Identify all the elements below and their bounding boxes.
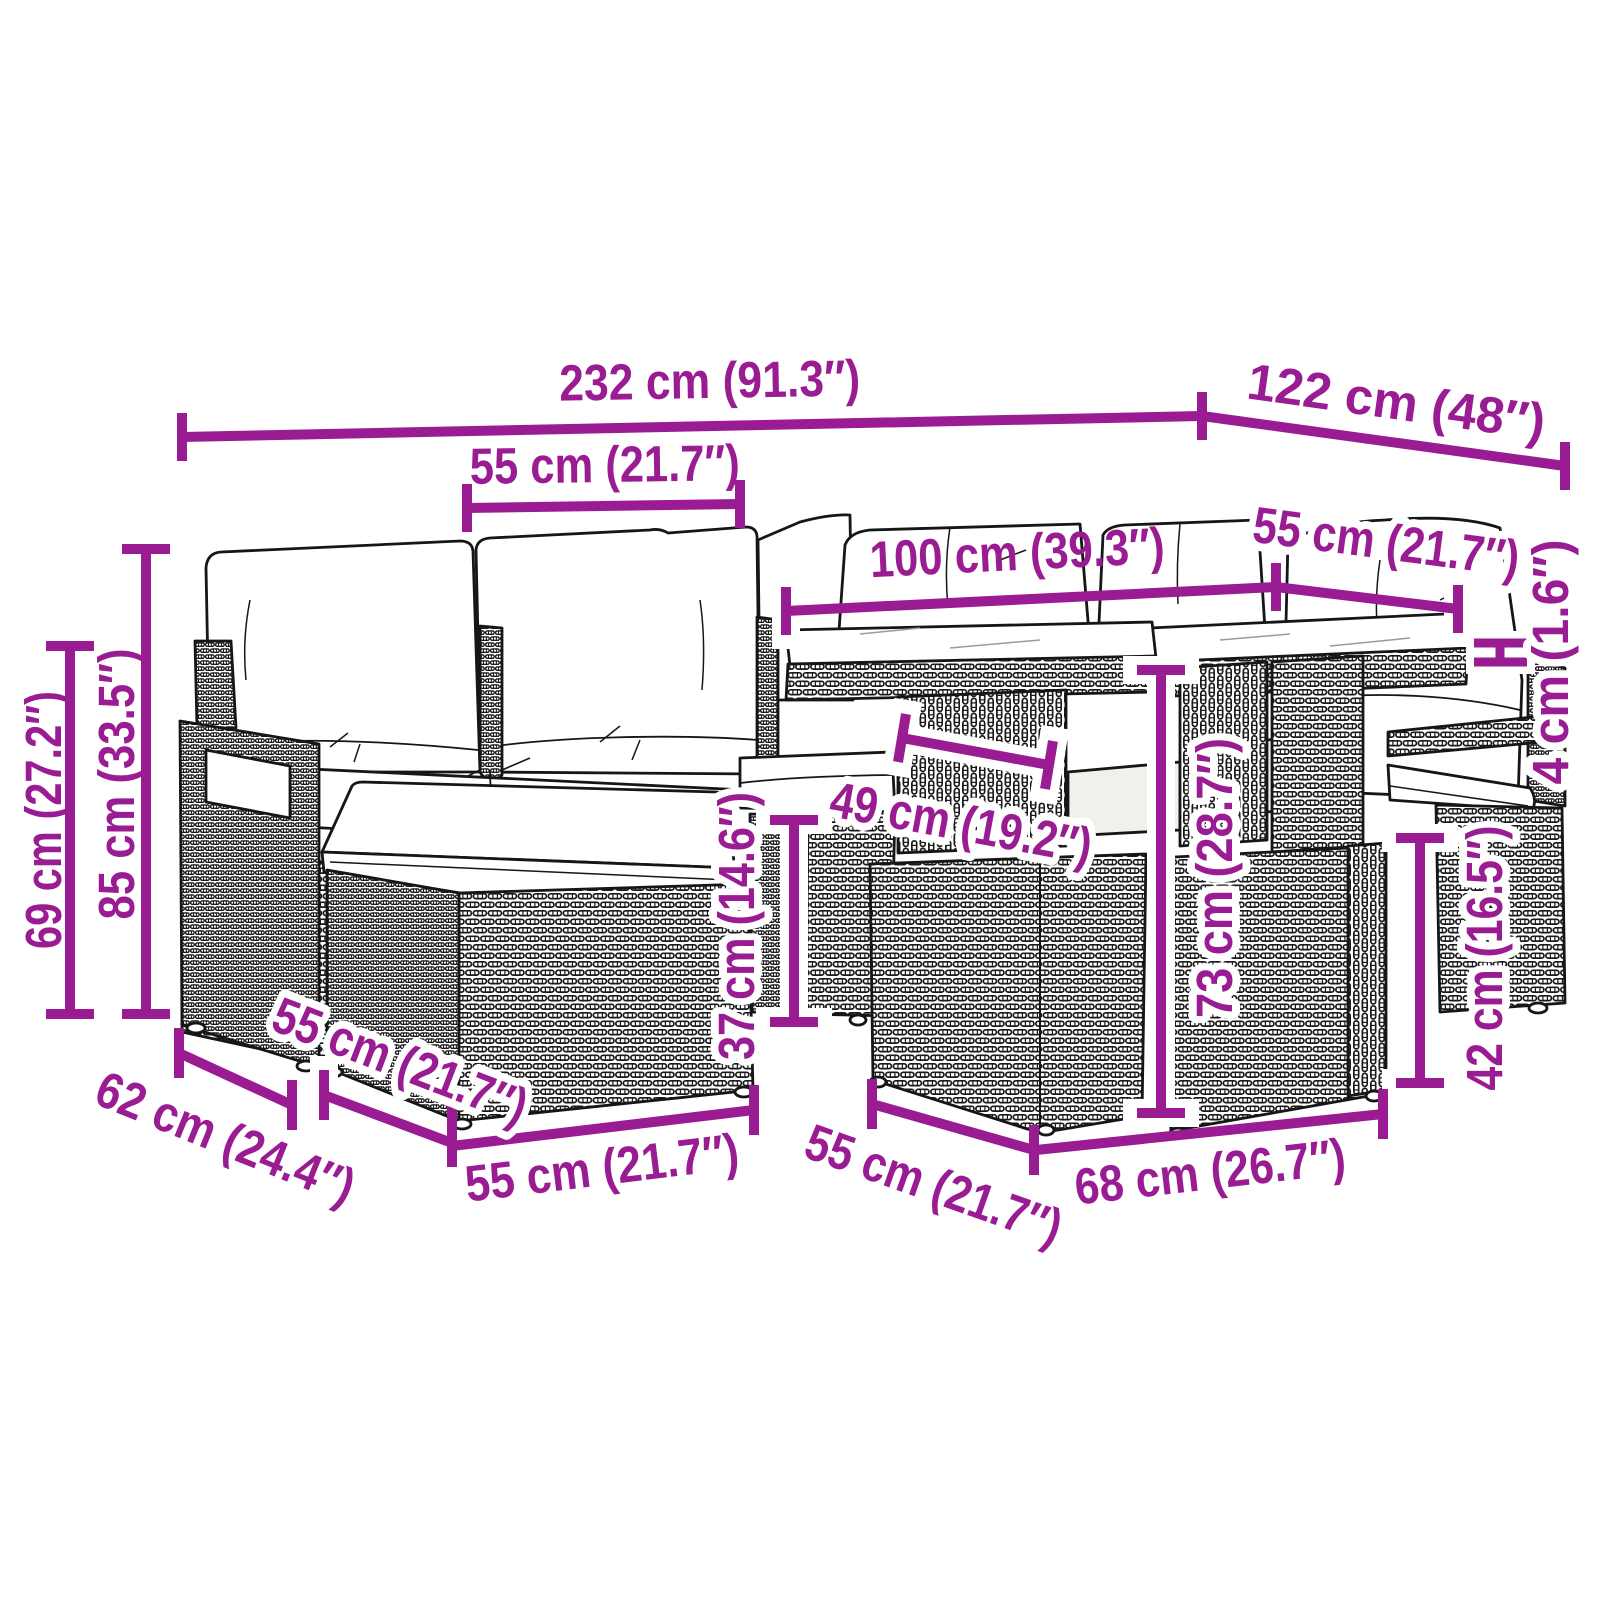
svg-text:55 cm (21.7″): 55 cm (21.7″) (469, 434, 740, 495)
svg-text:37 cm (14.6″): 37 cm (14.6″) (708, 792, 765, 1060)
svg-text:4 cm (1.6″): 4 cm (1.6″) (1522, 540, 1579, 785)
svg-text:73 cm (28.7″): 73 cm (28.7″) (1186, 738, 1243, 1018)
svg-text:232 cm (91.3″): 232 cm (91.3″) (559, 349, 861, 411)
svg-text:85 cm (33.5″): 85 cm (33.5″) (88, 649, 145, 920)
svg-text:69 cm (27.2″): 69 cm (27.2″) (15, 691, 72, 949)
svg-text:42 cm (16.5″): 42 cm (16.5″) (1456, 826, 1513, 1091)
